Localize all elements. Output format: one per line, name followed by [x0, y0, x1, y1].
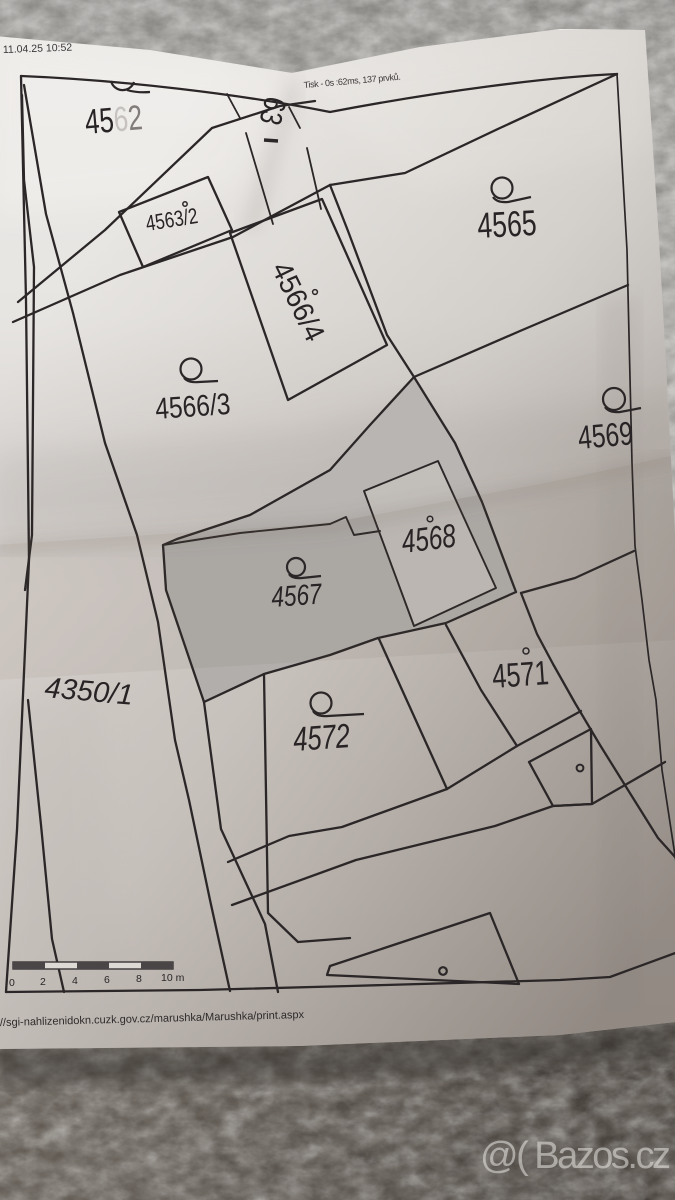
svg-text:4566/3: 4566/3 [154, 386, 231, 425]
svg-text:@( Bazos.cz: @( Bazos.cz [480, 1135, 670, 1177]
svg-text:8: 8 [136, 973, 142, 985]
svg-text:4565: 4565 [476, 202, 537, 246]
svg-text:6: 6 [104, 974, 110, 986]
svg-text:10 m: 10 m [161, 972, 185, 984]
svg-text:0: 0 [9, 977, 15, 989]
svg-text:4: 4 [72, 975, 78, 987]
svg-text:4567: 4567 [270, 577, 324, 614]
svg-text:4571: 4571 [491, 655, 550, 696]
svg-text:4572: 4572 [292, 718, 351, 759]
svg-text:11.04.25 10:52: 11.04.25 10:52 [3, 42, 73, 56]
svg-text:4562: 4562 [83, 97, 144, 142]
svg-text:2: 2 [40, 976, 46, 988]
svg-text:4569: 4569 [577, 416, 635, 457]
svg-text:4568: 4568 [400, 518, 458, 561]
